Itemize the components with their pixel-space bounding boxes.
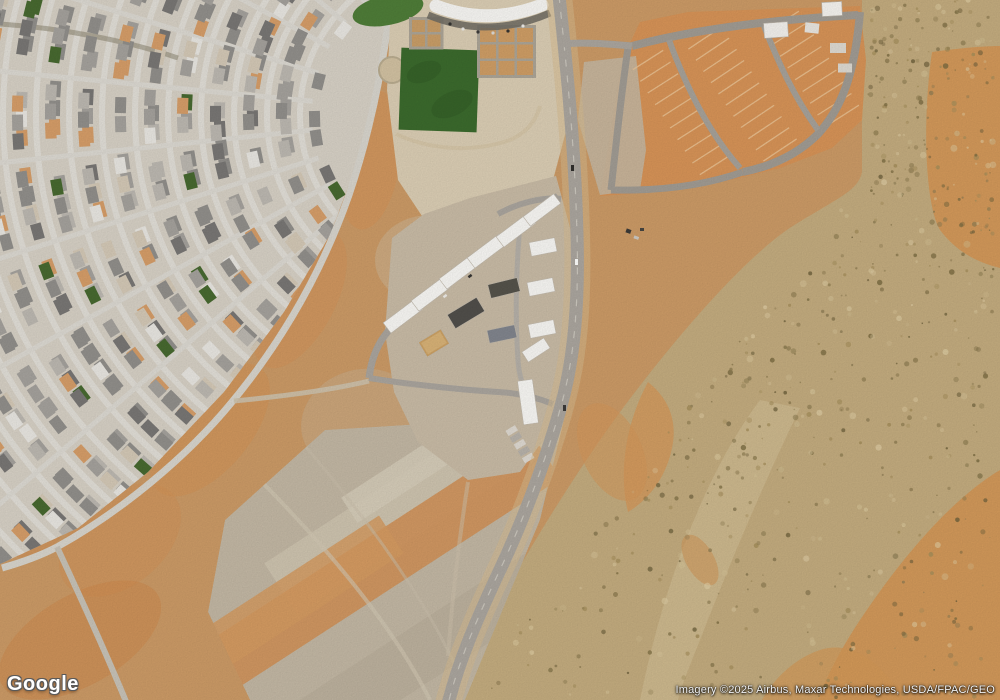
google-logo[interactable]: Google bbox=[7, 673, 79, 696]
attribution-text: Imagery ©2025 Airbus, Maxar Technologies… bbox=[676, 684, 996, 696]
satellite-imagery bbox=[0, 0, 1000, 700]
map-canvas[interactable]: Google Imagery ©2025 Airbus, Maxar Techn… bbox=[0, 0, 1000, 700]
imagery-grain bbox=[0, 0, 1000, 700]
